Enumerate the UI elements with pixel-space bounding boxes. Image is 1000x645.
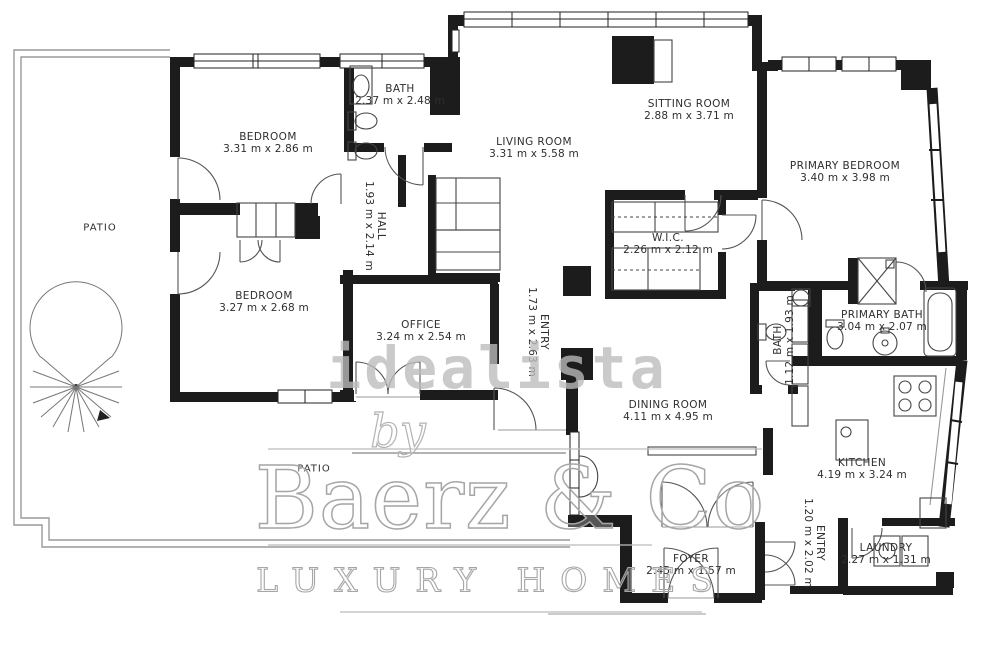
watermark-lines: [268, 449, 762, 612]
floor-plan-canvas: [0, 0, 1000, 645]
hall-closets: [436, 178, 500, 270]
wic-wardrobes: [612, 202, 718, 290]
floor-plan-page: PATIO BEDROOM3.31 m x 2.86 m BATH2.37 m …: [0, 0, 1000, 645]
windows: [194, 12, 896, 515]
thresholds: [356, 397, 753, 614]
walls: [170, 15, 968, 603]
laundry-fixtures: [874, 498, 946, 566]
wall-openings: [169, 142, 882, 527]
sitting-cabinet: [654, 40, 672, 82]
bedroom-closet: [237, 203, 295, 237]
patio-outline: [14, 50, 570, 547]
spiral-staircase-icon: [30, 282, 122, 432]
doors: [178, 147, 926, 598]
dining-furniture: [579, 447, 756, 497]
primary-bath-fixtures: [826, 258, 956, 356]
bath2-fixtures: [758, 289, 810, 340]
